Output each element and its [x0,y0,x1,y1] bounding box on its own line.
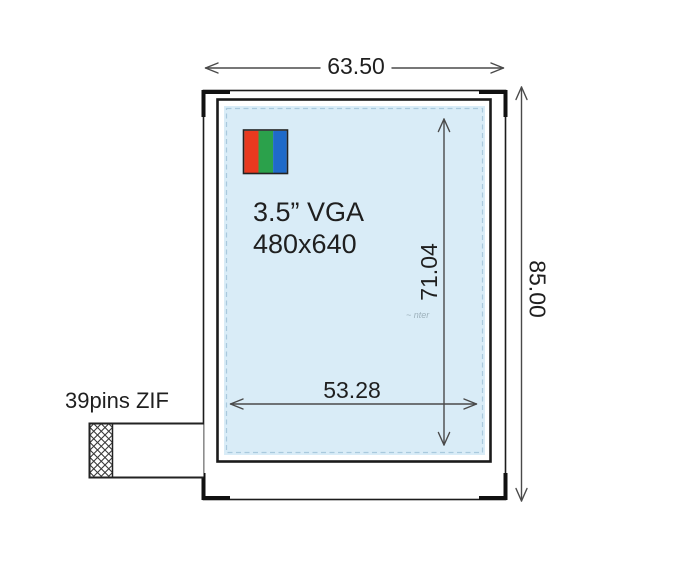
dimension-module-height: 85.00 [516,87,551,501]
active-width-value: 53.28 [323,377,381,403]
module-height-value: 85.00 [525,260,551,318]
red-stripe [244,131,258,173]
rgb-stripe-swatch [244,130,288,174]
screen-size-label: 3.5” VGA [253,197,364,227]
module-width-value: 63.50 [327,53,385,79]
zif-connector-hatched-cap [90,424,113,478]
green-stripe [259,131,274,173]
screen-resolution-label: 480x640 [253,229,357,259]
dimension-module-width: 63.50 [206,53,504,79]
lcd-outline-drawing: 39pins ZIF 3.5” VGA 480x640 ~ nter 63.50… [0,0,700,562]
watermark-text: ~ nter [406,310,430,320]
connector-label: 39pins ZIF [65,388,169,413]
drawing-canvas: 39pins ZIF 3.5” VGA 480x640 ~ nter 63.50… [0,0,700,562]
active-height-value: 71.04 [416,243,442,301]
blue-stripe [273,131,287,173]
